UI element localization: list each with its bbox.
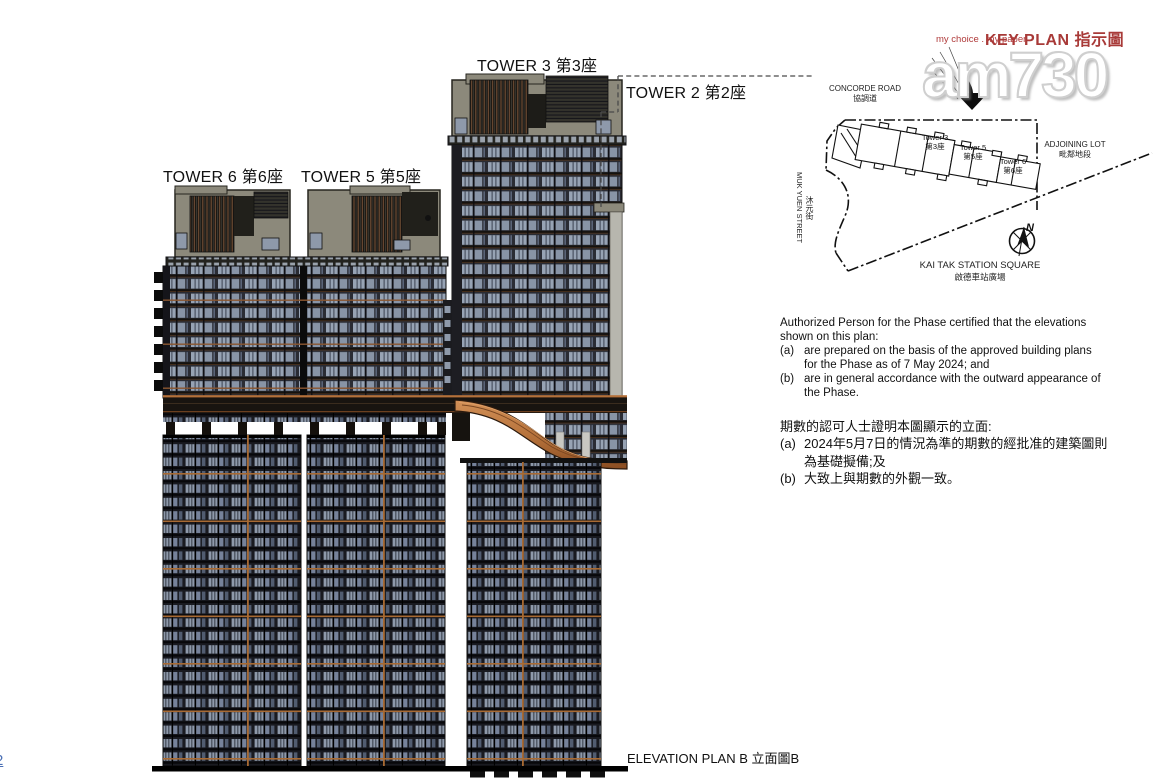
elevation-caption-zh: 立面圖B xyxy=(752,751,800,766)
certification-en-intro: Authorized Person for the Phase certifie… xyxy=(780,316,1102,344)
certification-zh-intro: 期數的認可人士證明本圖顯示的立面: xyxy=(780,418,1118,435)
tower6-crown xyxy=(175,186,290,257)
adjoining-lot-zh: 毗鄰地段 xyxy=(1040,150,1110,160)
item-a-label: (a) xyxy=(780,344,804,372)
certification-zh-item-a: (a) 2024年5月7日的情況為準的期數的經批准的建築圖則為基礎擬備;及 xyxy=(780,435,1118,470)
zh-item-a-text: 2024年5月7日的情況為準的期數的經批准的建築圖則為基礎擬備;及 xyxy=(804,435,1118,470)
watermark: my choice . my paper am730 xyxy=(922,34,1106,106)
keyplan-tower6-label: Tower 6第6座 xyxy=(990,157,1036,175)
concorde-road-zh: 協調道 xyxy=(820,94,910,104)
brochure-page: 2 TOWER 3 第3座 TOWER 2 第2座 TOWER 6 第6座 TO… xyxy=(0,0,1169,784)
certification-en-item-b: (b) are in general accordance with the o… xyxy=(780,372,1102,400)
concorde-road-label: CONCORDE ROAD 協調道 xyxy=(820,84,910,104)
zh-item-b-label: (b) xyxy=(780,470,804,487)
concorde-road-en: CONCORDE ROAD xyxy=(820,84,910,94)
lower-shafts xyxy=(163,435,627,766)
adjoining-lot-label: ADJOINING LOT 毗鄰地段 xyxy=(1040,140,1110,160)
tower3-crown xyxy=(448,74,626,145)
kai-tak-station-square-zh: 啟德車站廣場 xyxy=(905,272,1055,283)
zh-item-a-label: (a) xyxy=(780,435,804,470)
towers56-parapet-rail xyxy=(166,257,448,266)
transfer-band xyxy=(163,395,627,413)
item-b-text: are in general accordance with the outwa… xyxy=(804,372,1102,400)
tower3-label: TOWER 3 第3座 xyxy=(477,52,597,76)
item-b-label: (b) xyxy=(780,372,804,400)
elevation-caption: ELEVATION PLAN B 立面圖B xyxy=(627,748,799,767)
tower5-crown xyxy=(308,186,440,257)
muk-yuen-street-en: MUK YUEN STREET xyxy=(795,172,804,252)
page-number-link[interactable]: 2 xyxy=(0,752,3,769)
tower3-side-strip xyxy=(443,300,452,396)
left-balcony-stubs xyxy=(154,272,163,391)
tower5-label: TOWER 5 第5座 xyxy=(301,163,421,187)
towers56-slab-facade xyxy=(154,266,446,398)
zh-item-b-text: 大致上與期數的外觀一致。 xyxy=(804,470,1118,487)
item-a-text: are prepared on the basis of the approve… xyxy=(804,344,1102,372)
north-label: N xyxy=(1026,222,1034,234)
tower2-label: TOWER 2 第2座 xyxy=(626,79,746,103)
watermark-brand-logo: am730 xyxy=(922,45,1106,106)
muk-yuen-street-zh: 沐元街 xyxy=(804,196,815,236)
certification-en-item-a: (a) are prepared on the basis of the app… xyxy=(780,344,1102,372)
adjoining-lot-en: ADJOINING LOT xyxy=(1040,140,1110,150)
certification-text-zh: 期數的認可人士證明本圖顯示的立面: (a) 2024年5月7日的情況為準的期數的… xyxy=(780,418,1118,487)
ground-line xyxy=(152,766,628,778)
podium-deck xyxy=(163,413,446,435)
certification-zh-item-b: (b) 大致上與期數的外觀一致。 xyxy=(780,470,1118,487)
tower3-upper-facade xyxy=(443,145,624,396)
tower6-label: TOWER 6 第6座 xyxy=(163,163,283,187)
kai-tak-station-square-label: KAI TAK STATION SQUARE 啟德車站廣場 xyxy=(905,260,1055,283)
elevation-caption-en: ELEVATION PLAN B xyxy=(627,751,748,766)
kai-tak-station-square-en: KAI TAK STATION SQUARE xyxy=(905,260,1055,272)
certification-text-en: Authorized Person for the Phase certifie… xyxy=(780,316,1102,400)
